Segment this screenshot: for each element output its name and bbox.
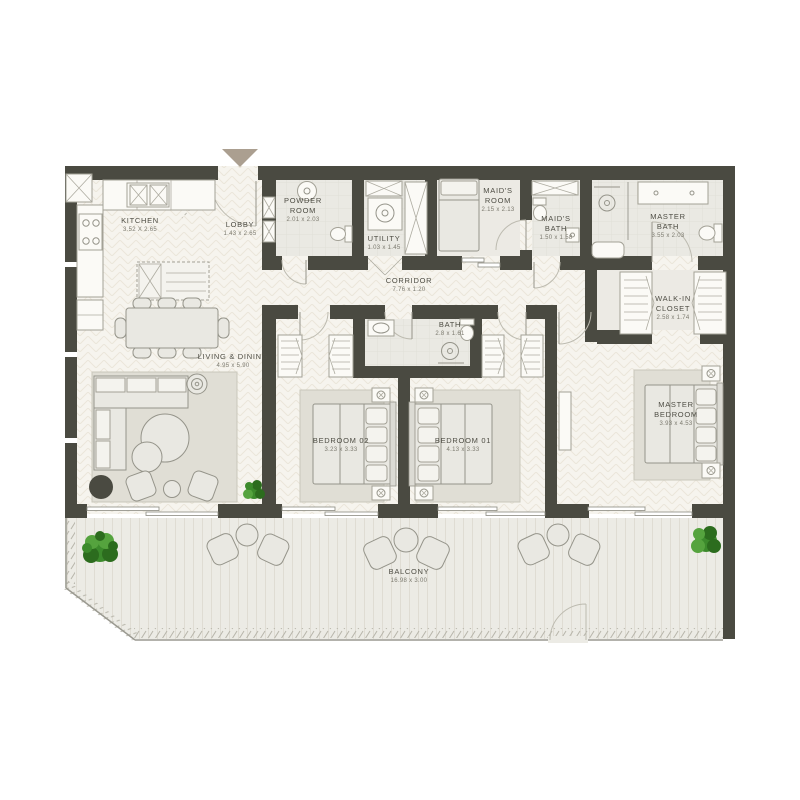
room-label-maids-bath: MAID'S BATH 1.50 x 1.58 xyxy=(540,214,573,241)
room-label-corridor: CORRIDOR 7.76 x 1.20 xyxy=(386,276,432,293)
room-label-master-bedroom: MASTER BEDROOM 3.93 x 4.53 xyxy=(654,400,698,427)
room-label-utility: UTILITY 1.03 x 1.45 xyxy=(368,234,401,251)
room-label-balcony: BALCONY 16.98 x 3.00 xyxy=(389,567,430,584)
floor-plan: KITCHEN 3.52 X 2.65 LOBBY 1.43 x 2.65 PO… xyxy=(0,0,800,800)
room-label-master-bath: MASTER BATH 3.55 x 2.03 xyxy=(650,212,685,239)
room-label-living-dining: LIVING & DINING 4.95 x 5.90 xyxy=(198,352,269,369)
room-label-maids-room: MAID'S ROOM 2.15 x 2.13 xyxy=(482,186,515,213)
room-label-walk-in-closet: WALK-IN CLOSET 2.58 x 1.74 xyxy=(655,294,691,321)
room-label-bedroom-01: BEDROOM 01 4.13 x 3.33 xyxy=(435,436,491,453)
room-label-bath: BATH 2.8 x 1.61 xyxy=(435,320,464,337)
room-label-kitchen: KITCHEN 3.52 X 2.65 xyxy=(121,216,159,233)
room-label-powder-room: POWDER ROOM 2.01 x 2.03 xyxy=(284,196,322,223)
room-label-bedroom-02: BEDROOM 02 3.23 x 3.33 xyxy=(313,436,369,453)
room-label-lobby: LOBBY 1.43 x 2.65 xyxy=(224,220,257,237)
room-labels: KITCHEN 3.52 X 2.65 LOBBY 1.43 x 2.65 PO… xyxy=(0,0,800,800)
